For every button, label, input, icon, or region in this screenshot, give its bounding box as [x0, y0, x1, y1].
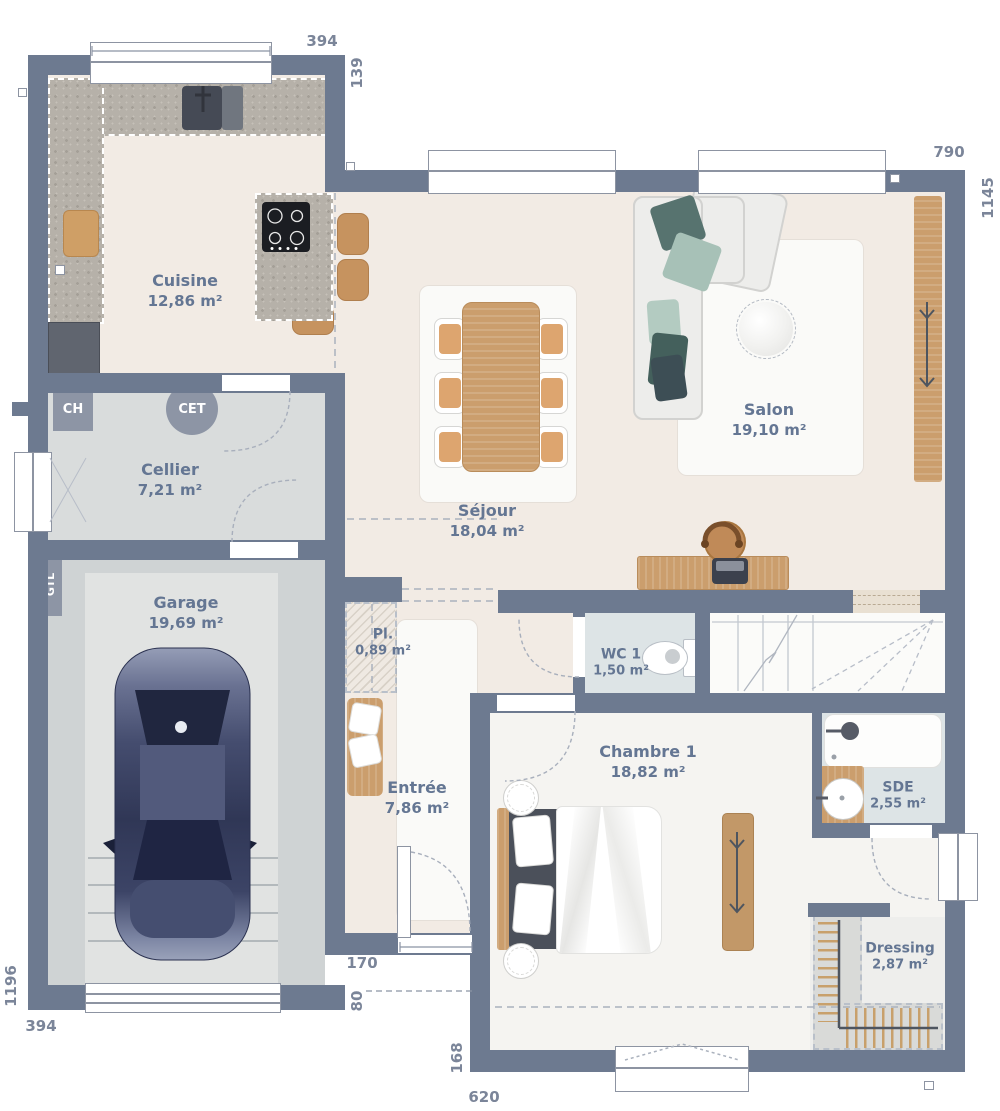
window-kitchen [90, 42, 272, 84]
floor-plan: CET CH GTL [0, 0, 1000, 1111]
dining-table [462, 302, 540, 472]
duvet-fold [602, 806, 652, 954]
room-label-wc: WC 1 1,50 m² [593, 645, 649, 680]
kitchen-island [255, 193, 333, 321]
wall-marker [346, 162, 355, 171]
bed-pillow [512, 882, 554, 935]
room-area: 7,21 m² [138, 481, 202, 501]
room-name: Séjour [450, 501, 525, 522]
room-name: WC 1 [593, 645, 649, 663]
bedroom-runner-rug [722, 813, 754, 951]
dim-left-side: 1196 [2, 965, 20, 1007]
window-sejour [428, 150, 616, 194]
room-label-entree: Entrée 7,86 m² [385, 778, 449, 818]
shower [824, 714, 942, 768]
dining-chair [536, 426, 568, 468]
fridge [48, 322, 100, 374]
room-label-placard: Pl. 0,89 m² [355, 625, 411, 660]
room-area: 2,87 m² [865, 958, 934, 975]
room-area: 7,86 m² [385, 799, 449, 819]
garage-door [85, 983, 281, 1013]
laptop-screen [716, 561, 744, 571]
dim-entry-door: 170 [346, 954, 377, 972]
room-label-chambre: Chambre 1 18,82 m² [599, 742, 697, 782]
dim-kitchen-side: 139 [348, 57, 366, 88]
room-label-cellier: Cellier 7,21 m² [138, 460, 202, 500]
car-roof [140, 745, 225, 820]
car-antenna [175, 721, 187, 733]
room-area: 2,55 m² [870, 797, 926, 814]
dim-kitchen-window: 394 [306, 32, 337, 50]
room-area: 19,69 m² [149, 614, 224, 634]
wall-marker [924, 1081, 934, 1090]
floor-hall-nook [490, 613, 573, 693]
room-area: 1,50 m² [593, 664, 649, 681]
room-name: Entrée [385, 778, 449, 799]
cutting-board [63, 210, 99, 257]
door-opening [497, 695, 575, 711]
stair-opening-mark [853, 590, 920, 613]
room-name: Cellier [138, 460, 202, 481]
car-windshield [133, 820, 232, 880]
window-cellier [14, 452, 52, 532]
nightstand [503, 943, 539, 979]
dim-bedroom-bottom: 620 [468, 1088, 499, 1106]
bed-footboard [497, 808, 509, 950]
laptop [712, 558, 748, 584]
bar-stool [337, 259, 369, 301]
duvet-fold [558, 806, 602, 954]
kitchen-counter-left [48, 78, 104, 324]
bench-cushion [348, 702, 383, 737]
room-area: 12,86 m² [148, 292, 223, 312]
room-name: Cuisine [148, 271, 223, 292]
wall [695, 613, 710, 693]
room-name: Garage [149, 593, 224, 614]
nightstand [503, 780, 539, 816]
wall [808, 903, 890, 917]
car [100, 640, 260, 970]
room-name: SDE [870, 778, 926, 796]
door-opening [573, 617, 585, 677]
dim-living-top: 790 [933, 143, 964, 161]
floor-stairs [710, 613, 945, 693]
toilet-lid [665, 649, 680, 664]
desk-chair [704, 521, 746, 563]
door-opening [870, 825, 932, 838]
room-label-dressing: Dressing 2,87 m² [865, 939, 934, 974]
room-label-sde: SDE 2,55 m² [870, 778, 926, 813]
dining-chair [536, 372, 568, 414]
bed-pillow [512, 814, 554, 867]
room-area: 0,89 m² [355, 644, 411, 661]
wall [325, 560, 345, 955]
door-opening [230, 542, 298, 558]
wall [325, 373, 345, 560]
kitchen-sink-drainer [222, 86, 243, 130]
front-door-leaf [397, 846, 411, 938]
ladder-shelf [914, 196, 942, 482]
door-opening [222, 375, 290, 391]
room-label-sejour: Séjour 18,04 m² [450, 501, 525, 541]
wall [28, 55, 48, 1010]
room-name: Salon [732, 400, 807, 421]
wall [812, 713, 822, 823]
wall [28, 373, 345, 393]
dining-chair [536, 318, 568, 360]
hanging-clothes [846, 1008, 936, 1048]
wall [470, 693, 490, 1072]
coffee-table [739, 302, 793, 356]
wall-marker [55, 265, 65, 275]
bed-duvet [556, 806, 662, 954]
dim-right-side: 1145 [979, 177, 997, 219]
wall-marker [18, 88, 27, 97]
kitchen-sink [182, 86, 222, 130]
boiler-badge: CH [53, 387, 93, 431]
window-chambre-right [938, 833, 978, 901]
room-name: Pl. [355, 625, 411, 643]
boiler-label: CH [63, 402, 83, 417]
car-hood [130, 880, 235, 938]
water-heater-label: CET [178, 402, 205, 417]
bar-stool [337, 213, 369, 255]
room-label-garage: Garage 19,69 m² [149, 593, 224, 633]
hanging-clothes [818, 922, 838, 1022]
bench-cushion [347, 733, 383, 769]
room-label-cuisine: Cuisine 12,86 m² [148, 271, 223, 311]
room-name: Chambre 1 [599, 742, 697, 763]
room-area: 18,82 m² [599, 763, 697, 783]
dim-garage-bottom: 394 [25, 1017, 56, 1035]
wall [945, 170, 965, 1072]
bathroom-sink [822, 778, 864, 820]
wall-marker [890, 174, 900, 183]
car-rear-window [135, 690, 230, 745]
wall [345, 577, 402, 602]
room-area: 19,10 m² [732, 421, 807, 441]
dim-bedroom-side: 168 [448, 1042, 466, 1073]
window-salon [698, 150, 886, 194]
room-area: 18,04 m² [450, 522, 525, 542]
room-name: Dressing [865, 939, 934, 957]
window-chambre-bottom [615, 1046, 749, 1092]
room-label-salon: Salon 19,10 m² [732, 400, 807, 440]
sofa-pillow [650, 354, 688, 402]
dim-entry-side: 80 [348, 991, 366, 1012]
